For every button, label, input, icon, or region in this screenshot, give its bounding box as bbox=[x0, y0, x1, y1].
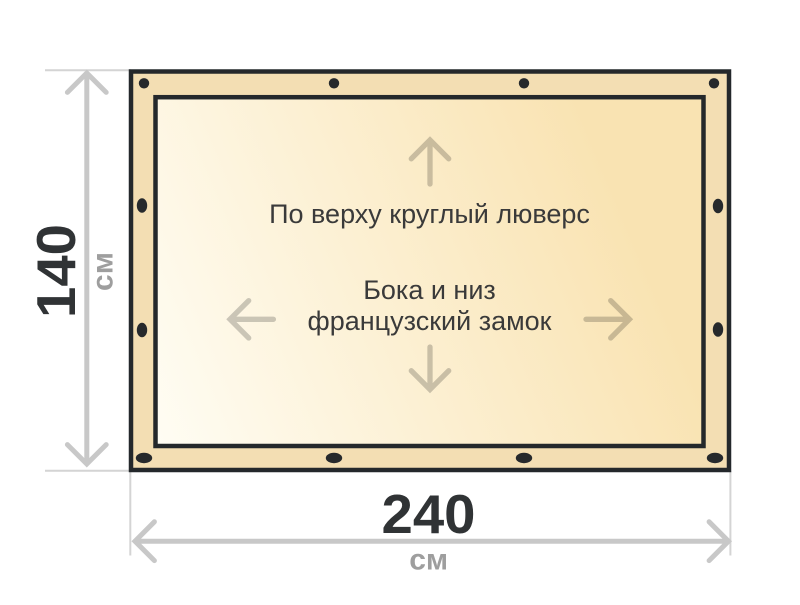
svg-text:Бока и низ: Бока и низ bbox=[363, 275, 496, 305]
svg-text:140: 140 bbox=[25, 224, 87, 318]
svg-text:см: см bbox=[409, 544, 448, 577]
svg-text:см: см bbox=[87, 252, 120, 291]
svg-text:240: 240 bbox=[382, 483, 476, 545]
svg-text:По верху круглый люверс: По верху круглый люверс bbox=[269, 199, 590, 229]
svg-text:французский замок: французский замок bbox=[308, 306, 552, 336]
